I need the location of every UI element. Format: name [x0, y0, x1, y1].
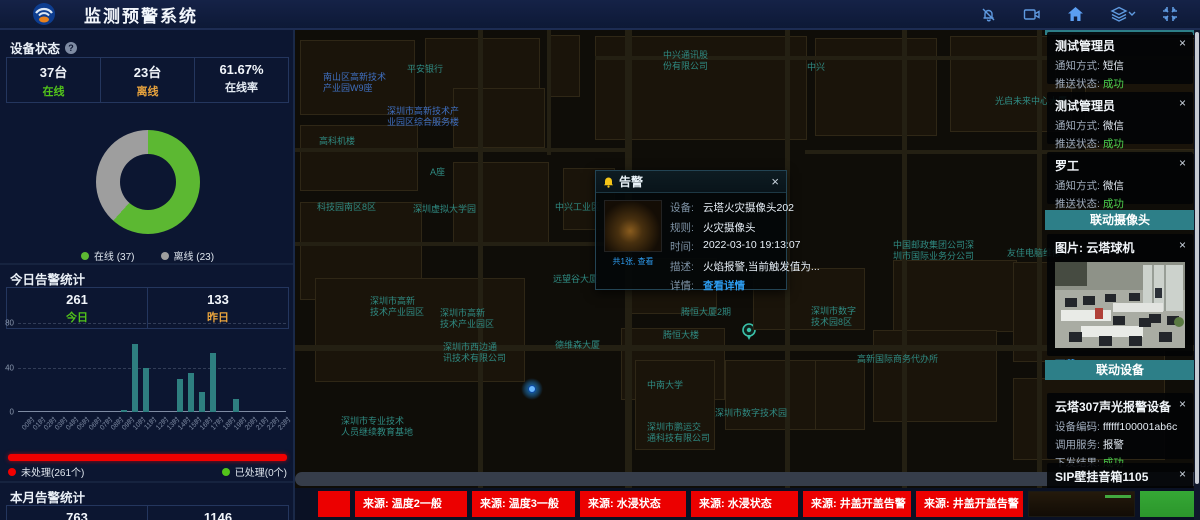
alert-chip-blank[interactable]	[318, 491, 350, 517]
map-label: 远望谷大厦	[553, 274, 598, 285]
map-block	[315, 278, 525, 382]
map-label: 深圳市高新技术产 业园区综合服务楼	[387, 106, 459, 128]
map-label: 科技园南区8区	[317, 202, 376, 213]
card-row: 推送状态: 成功	[1055, 76, 1185, 91]
donut-legend: 在线 (37)离线 (23)	[0, 248, 295, 263]
alarm-bell-icon	[603, 176, 614, 188]
divider	[0, 481, 295, 483]
bar	[188, 373, 194, 412]
header-toolbar	[980, 6, 1178, 23]
stat-cell: 23台离线	[101, 58, 195, 102]
map-label: 腾恒大楼	[663, 330, 699, 341]
card-row: 调用服务: 报警	[1055, 437, 1185, 452]
map-road	[547, 30, 551, 155]
map-block	[815, 38, 937, 136]
map-label: 深圳市西边通 讯技术有限公司	[443, 342, 506, 364]
device-status-title: 设备状态 ?	[10, 38, 77, 57]
alert-chip[interactable]: 来源: 水浸状态	[691, 491, 798, 517]
stat-cell: 261今日	[7, 288, 148, 328]
alert-field: 描述:火焰报警,当前触发值为...	[670, 259, 820, 274]
legend-item: 在线 (37)	[81, 248, 135, 263]
map-label: 深圳虚拟大学园	[413, 204, 476, 215]
card-title: 罗工	[1055, 157, 1185, 174]
alert-popup: 告警 × 共1张, 查看 设备:云塔火灾摄像头202规则:火灾摄像头时间:202…	[595, 170, 787, 290]
close-icon[interactable]: ×	[1179, 468, 1186, 480]
help-icon[interactable]: ?	[65, 42, 77, 54]
alert-field-label: 时间:	[670, 239, 703, 254]
alert-chip[interactable]: 来源: 水浸状态	[580, 491, 686, 517]
map-label: 中兴工业区	[555, 202, 600, 213]
view-detail-link[interactable]: 查看详情	[703, 278, 745, 293]
device-status-table: 37台在线23台离线61.67%在线率	[6, 57, 289, 103]
alert-popup-header: 告警 ×	[596, 171, 786, 193]
map-label: 高新国际商务代办所	[857, 354, 938, 365]
bar	[132, 344, 138, 412]
bar	[121, 410, 127, 412]
bar	[143, 368, 149, 413]
map-label: 深圳市高新 技术产业园区	[440, 308, 494, 330]
notification-card: 云塔307声光报警设备×设备编码: ffffff100001ab6c调用服务: …	[1047, 393, 1193, 459]
stat-cell: 37台在线	[7, 58, 101, 102]
card-row: 通知方式: 短信	[1055, 58, 1185, 73]
linked-device-header: 联动设备	[1045, 360, 1195, 380]
card-row: 设备编码: ffffff100001ab6c	[1055, 419, 1185, 434]
map-block	[550, 35, 580, 97]
card-row: 通知方式: 微信	[1055, 178, 1185, 193]
close-icon[interactable]: ×	[771, 175, 779, 188]
alert-thumbnail-green[interactable]	[1140, 491, 1200, 517]
alert-snapshot-image[interactable]	[604, 200, 662, 252]
alert-chip[interactable]: 来源: 温度2一般	[355, 491, 467, 517]
map-label: 深圳市高新 技术产业园区	[370, 296, 424, 318]
y-tick: 80	[5, 319, 14, 328]
alert-field-value: 火灾摄像头	[703, 220, 756, 235]
month-value-1: 763	[7, 510, 147, 520]
month-value-2: 1146	[148, 510, 288, 520]
today-alarm-title: 今日告警统计	[10, 269, 85, 288]
right-scrollbar[interactable]	[1194, 30, 1200, 520]
close-icon[interactable]: ×	[1179, 239, 1186, 251]
bell-muted-icon[interactable]	[980, 6, 997, 23]
alert-field-value: 云塔火灾摄像头202	[703, 200, 794, 215]
alert-field-label: 详情:	[670, 278, 703, 293]
card-title: 测试管理员	[1055, 97, 1185, 114]
home-icon[interactable]	[1067, 6, 1084, 22]
map-label: 平安银行	[407, 64, 443, 75]
alert-field-value: 2022-03-10 19:13:07	[703, 239, 801, 254]
notification-card: 测试管理员×通知方式: 短信推送状态: 成功	[1047, 32, 1193, 84]
map-label: 高科机楼	[319, 136, 355, 147]
map-label: 腾恒大厦2期	[681, 307, 731, 318]
map-road	[478, 30, 483, 488]
map-label: 南山区高新技术 产业园W9座	[323, 72, 386, 94]
map-label: 中国邮政集团公司深 圳市国际业务分公司	[893, 240, 974, 262]
bar	[177, 379, 183, 412]
card-title: 云塔307声光报警设备	[1055, 398, 1185, 415]
alert-field: 设备:云塔火灾摄像头202	[670, 200, 820, 215]
stat-cell: 61.67%在线率	[195, 58, 288, 102]
card-row: 通知方式: 微信	[1055, 118, 1185, 133]
card-title: 测试管理员	[1055, 37, 1185, 54]
left-sidebar: 设备状态 ? 37台在线23台离线61.67%在线率 在线 (37)离线 (23…	[0, 30, 295, 520]
map-road	[295, 148, 625, 152]
y-tick: 0	[10, 408, 14, 417]
bar	[199, 392, 205, 412]
alert-field-label: 规则:	[670, 220, 703, 235]
map-label: 深圳市数字技术园	[715, 408, 787, 419]
alert-popup-title: 告警	[619, 173, 643, 190]
chevron-down-icon	[1129, 12, 1135, 15]
alert-fields: 设备:云塔火灾摄像头202规则:火灾摄像头时间:2022-03-10 19:13…	[670, 200, 820, 298]
map-label: 深圳市数字 技术园8区	[811, 306, 856, 328]
bar	[210, 353, 216, 412]
map-label: 德维森大厦	[555, 340, 600, 351]
divider	[0, 263, 295, 265]
card-row: 推送状态: 成功	[1055, 136, 1185, 151]
legend-item: 离线 (23)	[161, 248, 215, 263]
app-logo-icon	[32, 2, 56, 26]
app-header: 监测预警系统	[0, 0, 1200, 30]
alert-chip[interactable]: 来源: 井盖开盖告警	[916, 491, 1023, 517]
map-block	[873, 330, 997, 422]
fullscreen-icon[interactable]	[1162, 6, 1178, 22]
linked-camera-card: 图片: 云塔球机 ×	[1047, 234, 1193, 356]
page-title: 监测预警系统	[84, 2, 198, 27]
alert-field: 详情:查看详情	[670, 278, 820, 293]
alert-thumbnail-fire[interactable]	[1028, 491, 1135, 517]
notification-card: 测试管理员×通知方式: 微信推送状态: 成功	[1047, 92, 1193, 144]
map-block	[453, 88, 545, 148]
card-title: SIP壁挂音箱1105	[1055, 468, 1185, 485]
y-tick: 40	[5, 363, 14, 372]
alert-field-label: 描述:	[670, 259, 703, 274]
device-status-donut-chart	[96, 130, 200, 234]
alert-field: 规则:火灾摄像头	[670, 220, 820, 235]
alert-snapshot-caption[interactable]: 共1张, 查看	[604, 256, 662, 267]
processed-legend: 已处理(0个)	[222, 464, 287, 479]
map-road	[295, 242, 625, 246]
notification-card: 罗工×通知方式: 微信推送状态: 成功	[1047, 152, 1193, 204]
camera-card-title: 图片: 云塔球机	[1055, 239, 1185, 256]
card-row: 推送状态: 成功	[1055, 196, 1185, 211]
bar	[233, 399, 239, 412]
layers-icon[interactable]	[1110, 6, 1136, 22]
close-icon[interactable]: ×	[1179, 37, 1186, 49]
map-block	[815, 360, 865, 430]
camera-photo[interactable]	[1055, 262, 1185, 348]
month-alarm-table: 763 1146	[6, 505, 289, 520]
unprocessed-progress-bar	[8, 454, 287, 461]
app-root: 监测预警系统	[0, 0, 1200, 520]
close-icon[interactable]: ×	[1179, 97, 1186, 109]
map-label: 中南大学	[647, 380, 683, 391]
hourly-alarm-bar-chart: 0408000时01时02时03时04时05时06时07时08时09时10时11…	[18, 323, 286, 412]
scrollbar-thumb[interactable]	[1195, 32, 1199, 484]
process-legend: 未处理(261个) 已处理(0个)	[8, 464, 287, 479]
video-camera-icon[interactable]	[1023, 7, 1041, 22]
bottom-alert-bar: 来源: 温度2一般来源: 温度3一般来源: 水浸状态来源: 水浸状态来源: 井盖…	[295, 488, 1200, 520]
map-label: 深圳市专业技术 人员继续教育基地	[341, 416, 413, 438]
alert-chip[interactable]: 来源: 温度3一般	[472, 491, 575, 517]
map-label: 中兴通讯股 份有限公司	[663, 50, 708, 72]
map-label: 深圳市鹏运交 通科技有限公司	[647, 422, 710, 444]
map-label: A座	[430, 167, 445, 178]
alert-field-value: 火焰报警,当前触发值为...	[703, 259, 820, 274]
linked-camera-header: 联动摄像头	[1045, 210, 1195, 230]
close-icon[interactable]: ×	[1179, 157, 1186, 169]
unprocessed-legend: 未处理(261个)	[8, 464, 84, 479]
stat-cell: 133昨日	[148, 288, 288, 328]
alert-field-label: 设备:	[670, 200, 703, 215]
map-label: 中兴	[807, 62, 825, 73]
close-icon[interactable]: ×	[1179, 398, 1186, 410]
map-block	[893, 260, 1017, 332]
right-sidebar: 测试管理员×通知方式: 短信推送状态: 成功测试管理员×通知方式: 微信推送状态…	[1045, 30, 1195, 490]
month-alarm-title: 本月告警统计	[10, 487, 85, 506]
map-block	[300, 125, 418, 191]
alert-field: 时间:2022-03-10 19:13:07	[670, 239, 820, 254]
alert-chip[interactable]: 来源: 井盖开盖告警	[803, 491, 911, 517]
